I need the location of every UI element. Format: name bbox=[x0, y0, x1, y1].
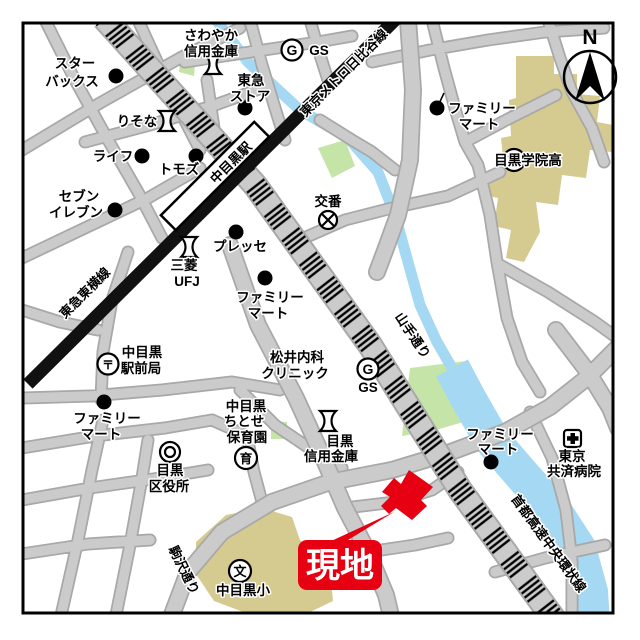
poi-label-familymart-c-1: ファミリー bbox=[236, 290, 304, 305]
poi-label-mufg-2: UFJ bbox=[174, 274, 200, 289]
gas-g-glyph: G bbox=[287, 42, 298, 58]
area-map: G G 〒 育 文 bbox=[0, 0, 640, 640]
poi-label-gs-north: GS bbox=[309, 43, 329, 58]
post-office-icon: 〒 bbox=[98, 354, 119, 375]
poi-label-mufg-1: 三菱 bbox=[171, 257, 198, 273]
ward-office-icon bbox=[160, 442, 180, 462]
poi-dot-starbucks bbox=[109, 69, 124, 84]
poi-dot-life bbox=[135, 149, 150, 164]
poi-label-ward-2: 区役所 bbox=[149, 478, 190, 494]
poi-label-familymart-se-2: マート bbox=[478, 442, 519, 457]
gas-station-icon-north: G bbox=[282, 40, 303, 61]
poi-label-sawayaka-2: 信用金庫 bbox=[184, 43, 238, 59]
poi-label-familymart-w-1: ファミリー bbox=[73, 411, 141, 426]
poi-label-meguro-shinkin-1: 目黒 bbox=[327, 434, 354, 449]
nursery-glyph: 育 bbox=[240, 451, 253, 466]
poi-label-seven-1: セブン bbox=[59, 188, 100, 204]
site-callout-label: 現地 bbox=[306, 547, 374, 585]
poi-label-kyosai-2: 共済病院 bbox=[547, 463, 601, 479]
poi-dot-presse bbox=[229, 225, 244, 240]
poi-label-familymart-w-2: マート bbox=[81, 427, 122, 442]
poi-label-familymart-c-2: マート bbox=[248, 306, 289, 321]
post-glyph: 〒 bbox=[102, 358, 114, 372]
poi-label-chitose-2: ちとせ bbox=[224, 414, 265, 429]
poi-label-sawayaka-1: さわやか bbox=[184, 28, 238, 43]
poi-dot-familymart-center bbox=[258, 271, 273, 286]
poi-label-familymart-ne-1: ファミリー bbox=[448, 101, 516, 116]
poi-label-meguro-shinkin-2: 信用金庫 bbox=[304, 448, 358, 464]
police-box-icon bbox=[319, 211, 337, 229]
poi-label-starbucks-1: スター bbox=[55, 56, 96, 71]
poi-label-chitose-3: 保育園 bbox=[226, 429, 268, 445]
poi-label-matsui-2: クリニック bbox=[261, 366, 329, 381]
poi-label-familymart-ne-2: マート bbox=[459, 117, 500, 132]
poi-label-familymart-se-1: ファミリー bbox=[466, 427, 534, 442]
poi-label-matsui-1: 松井内科 bbox=[270, 349, 324, 365]
poi-label-post-1: 中目黒 bbox=[122, 344, 163, 360]
poi-label-chitose-1: 中目黒 bbox=[226, 398, 267, 414]
poi-label-risona: りそな bbox=[117, 114, 158, 129]
gas-g-glyph: G bbox=[363, 361, 374, 377]
poi-label-tokyu-store-1: 東急 bbox=[238, 72, 265, 88]
school-icon-nakameguro-es: 文 bbox=[229, 560, 251, 582]
poi-dot-seven-eleven bbox=[108, 203, 123, 218]
hospital-icon bbox=[564, 430, 581, 447]
gas-station-icon-mid: G bbox=[358, 359, 379, 380]
poi-label-seven-2: イレブン bbox=[49, 204, 103, 220]
poi-label-meguro-gakuin: 目黒学院高 bbox=[494, 152, 562, 168]
poi-label-kyosai-1: 東京 bbox=[559, 448, 586, 464]
poi-label-post-2: 駅前局 bbox=[121, 360, 162, 376]
poi-dot-familymart-west bbox=[97, 395, 112, 410]
poi-label-starbucks-2: バックス bbox=[45, 74, 99, 89]
poi-label-ward-1: 目黒 bbox=[157, 463, 184, 478]
nursery-icon: 育 bbox=[235, 447, 257, 469]
poi-label-tomods: トモズ bbox=[159, 161, 200, 177]
poi-label-presse: プレッセ bbox=[213, 239, 267, 254]
poi-label-life: ライフ bbox=[93, 149, 134, 164]
school-glyph: 文 bbox=[233, 564, 247, 579]
poi-label-nakameguro-es: 中目黒小 bbox=[216, 582, 270, 598]
poi-label-koban: 交番 bbox=[315, 193, 342, 209]
poi-label-gs-mid: GS bbox=[358, 380, 378, 395]
compass-n-label: N bbox=[582, 26, 597, 49]
poi-label-tokyu-store-2: ストア bbox=[230, 89, 271, 104]
map-canvas: G G 〒 育 文 bbox=[0, 0, 640, 640]
